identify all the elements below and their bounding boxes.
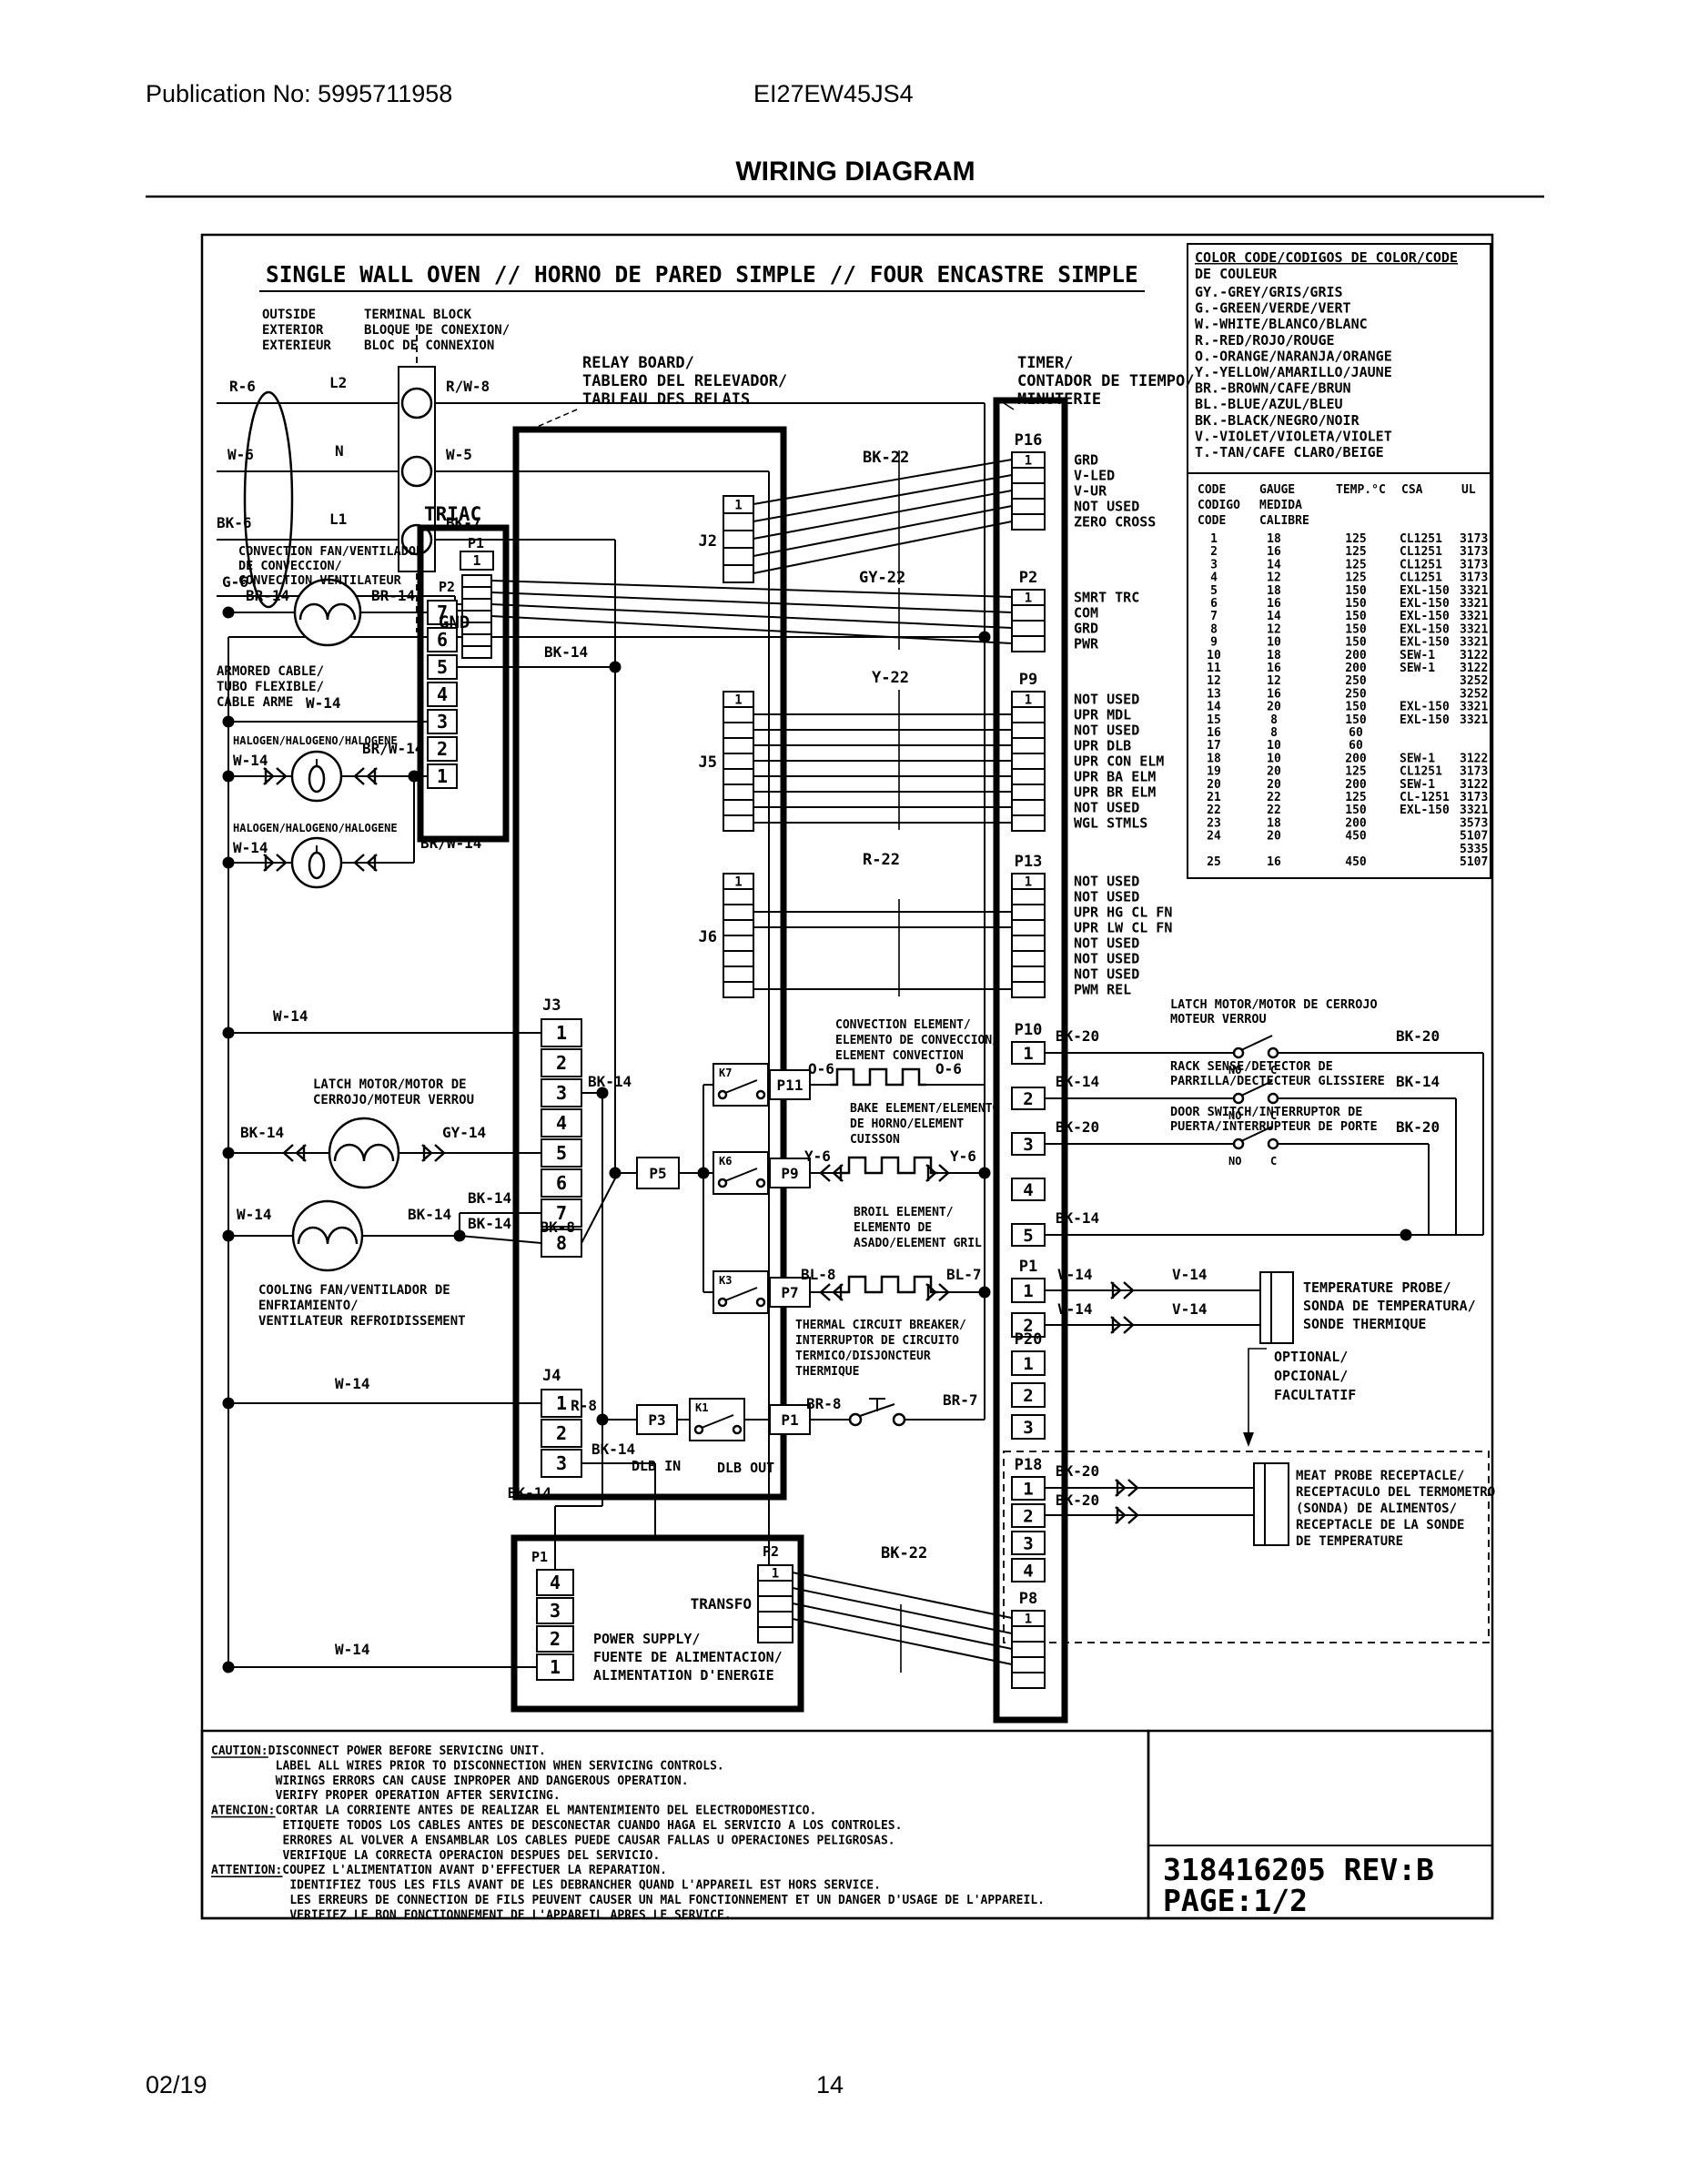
j6-cell [723,920,753,935]
gauge-cell-temp: 200 [1345,778,1367,792]
wire-label: P2 [439,579,455,595]
gauge-cell-gauge: 20 [1267,778,1281,792]
gauge-cell-code: 8 [1210,622,1218,636]
gauge-cell-ul: 3321 [1460,804,1488,817]
wire-label: BR-8 [806,1395,842,1412]
gauge-cell-ul: 3122 [1460,662,1488,675]
wire-label: BL-7 [946,1266,982,1283]
wire-label: BK-14 [240,1124,284,1141]
j5-cell [723,769,753,784]
connector-cell [1012,982,1045,997]
pin-label: UPR MDL [1074,707,1131,723]
wire-label: BK-8 [540,1218,575,1236]
gauge-cell-gauge: 16 [1267,855,1281,869]
wire-label: DLB IN [632,1458,681,1474]
gauge-table-box [1188,473,1491,878]
gauge-cell-csa: SEW-1 [1400,752,1435,765]
wire-label: BK-20 [1056,1118,1099,1136]
j6-cell [723,905,753,920]
pin-number: 2 [556,1052,567,1074]
pin-number: 2 [1023,1089,1033,1109]
connector-cell [1012,605,1045,621]
psu-p2-cell [758,1596,793,1612]
wire-label: O-6 [935,1060,962,1077]
wire-label: DLB OUT [717,1460,774,1476]
j6-cell [723,966,753,982]
wire-label: W-14 [335,1375,370,1392]
wire-label: INTERRUPTOR DE CIRCUITO [795,1334,959,1348]
pin-label: NOT USED [1074,874,1139,890]
wire-label: W-14 [233,752,268,769]
pin-label: PWR [1074,636,1099,652]
wire-label: CONTADOR DE TIEMPO/ [1017,372,1194,390]
gauge-cell-ul: 3252 [1460,687,1488,701]
junction-dot [223,1027,235,1039]
wire-label: BK-20 [1056,1491,1099,1509]
psu-p2-cell [758,1627,793,1643]
wire-label: W-14 [306,694,341,712]
gauge-cell-gauge: 12 [1267,674,1281,688]
pin-number: 2 [1023,1507,1033,1527]
wire-label: BK-14 [468,1189,511,1207]
j5-cell [723,753,753,769]
gauge-cell-ul: 3173 [1460,765,1488,779]
gauge-cell-code: 17 [1207,739,1221,753]
port-label: K7 [719,1067,732,1079]
j6-cell [723,935,753,951]
connector-cell [1012,1642,1045,1657]
pin-number: 4 [550,1572,561,1593]
pin-label: UPR DLB [1074,738,1131,754]
gauge-cell-code: 13 [1207,687,1221,701]
wire-label: Y-6 [804,1148,831,1165]
wire-label: OUTSIDE [262,308,316,322]
pin-number: 2 [550,1628,561,1650]
junction-dot [979,632,991,643]
pin-label: NOT USED [1074,889,1139,905]
gauge-cell-csa: CL1251 [1400,545,1442,559]
gauge-cell-gauge: 22 [1267,804,1281,817]
broil-element-symbol [842,1277,938,1292]
connector-cell [1012,966,1045,982]
wire-label: BK-14 [1056,1209,1099,1227]
gauge-cell-ul: 3173 [1460,571,1488,585]
junction-dot [409,771,420,783]
connector-cell [1012,621,1045,636]
connector-cell [1012,889,1045,905]
junction-dot [979,1287,991,1299]
connector-cell [1012,769,1045,784]
wire-label: TEMPERATURE PROBE/ [1303,1279,1451,1296]
wire-label: R-6 [229,378,256,395]
gauge-cell-code: 11 [1207,662,1221,675]
junction-dot [223,857,235,869]
pin-label: UPR BR ELM [1074,784,1156,801]
gauge-cell-temp: 125 [1345,791,1366,804]
wire-label: RELAY BOARD/ [582,354,694,372]
wire-label: PUERTA/INTERRUPTEUR DE PORTE [1170,1119,1378,1134]
gauge-cell-ul: 3321 [1460,713,1488,727]
pin-label: UPR HG CL FN [1074,905,1172,921]
pin-number: 3 [550,1600,561,1622]
pin-label: ZERO CROSS [1074,514,1156,531]
gauge-cell-csa: CL1251 [1400,558,1442,571]
gauge-cell-csa: EXL-150 [1400,610,1450,623]
wire-label: W-6 [227,446,254,463]
wire-label: OPCIONAL/ [1274,1368,1348,1384]
wire-label: N [335,442,344,460]
color-code-entry: BR.-BROWN/CAFE/BRUN [1195,380,1351,397]
connector-cell [1012,905,1045,920]
wire-label: TABLEAU DES RELAIS [582,390,750,409]
gauge-cell-ul: 3122 [1460,752,1488,765]
color-code-entry: T.-TAN/CAFE CLARO/BEIGE [1195,444,1384,460]
junction-dots [223,607,1412,1673]
connector-cell [1012,784,1045,800]
pin-number: 2 [1023,1386,1033,1406]
gauge-cell-temp: 250 [1345,674,1367,688]
wire-label: RECEPTACULO DEL TERMOMETRO [1296,1485,1495,1500]
pin-label: WGL STMLS [1074,815,1147,832]
wire-label: BLOQUE DE CONEXION/ [364,323,510,338]
pin-number: 1 [734,875,742,890]
caution-line: WIRINGS ERRORS CAN CAUSE INPROPER AND DA… [276,1774,689,1788]
wire-label: PARRILLA/DECTECTEUR GLISSIERE [1170,1074,1385,1088]
wire-label: TERMICO/DISJONCTEUR [795,1350,931,1363]
gauge-cell-gauge: 18 [1267,584,1281,598]
gauge-cell-ul: 3252 [1460,674,1488,688]
gauge-cell-csa: EXL-150 [1400,597,1450,611]
gauge-cell-temp: 150 [1345,584,1367,598]
pin-label: V-UR [1074,483,1107,500]
gauge-cell-ul: 3321 [1460,584,1488,598]
gauge-cell-gauge: 20 [1267,830,1281,844]
connector-cell [1012,1657,1045,1673]
gauge-cell-csa: SEW-1 [1400,662,1435,675]
pin-number: 3 [1023,1418,1033,1438]
connector-name-p1: P1 [1019,1258,1037,1276]
junction-dot [223,1662,235,1673]
gauge-cell-csa: CL1251 [1400,571,1442,585]
wire-label: J4 [542,1367,561,1385]
pin-number: 1 [1025,1613,1032,1627]
pin-label: GRD [1074,452,1098,469]
gauge-cell-temp: 125 [1345,545,1366,559]
wire-label: BK-14 [1396,1073,1440,1090]
wire-label: R-8 [571,1397,597,1414]
pin-number: 4 [1023,1180,1033,1200]
gauge-cell-gauge: 22 [1267,791,1281,804]
wire-label: J2 [699,532,717,551]
pin-label: NOT USED [1074,935,1139,952]
gauge-cell-gauge: 14 [1267,610,1281,623]
gauge-cell-ul: 3122 [1460,778,1488,792]
j5-cell [723,738,753,753]
color-code-entry: BL.-BLUE/AZUL/BLEU [1195,396,1343,412]
wire-label: BR/W-14 [420,834,481,852]
gauge-cell-gauge: 10 [1267,739,1281,753]
pin-label: NOT USED [1074,800,1139,816]
gauge-cell-code: 23 [1207,816,1221,830]
wire-label: BR-7 [943,1391,978,1409]
pin-number: 5 [437,656,448,678]
gauge-cell-code: 3 [1210,558,1218,571]
cooling-fan-symbol [293,1201,362,1270]
gauge-cell-temp: 150 [1345,701,1367,714]
gauge-cell-code: 16 [1207,726,1221,740]
wire-label: CONVECTION VENTILATEUR [238,573,402,588]
wire-label: TRIAC [424,503,481,525]
connector-cell [1012,499,1045,514]
wire-label: BAKE ELEMENT/ELEMENTO [850,1102,1000,1116]
j6-cell [723,982,753,997]
j2-cell [723,513,753,531]
caution-line: LABEL ALL WIRES PRIOR TO DISCONNECTION W… [276,1759,724,1773]
gauge-cell-temp: 200 [1345,662,1367,675]
caution-line: LES ERREURS DE CONNECTION DE FILS PEUVEN… [289,1894,1045,1907]
gauge-h-gauge3: CALIBRE [1259,514,1309,528]
pin-number: 1 [556,1392,567,1414]
connector-cell [1012,514,1045,530]
wire-label: BK-22 [881,1544,927,1562]
wire-label: RACK SENSE/DETECTOR DE [1170,1059,1333,1074]
gauge-h-temp: TEMP.°C [1336,483,1386,497]
pin-label: UPR BA ELM [1074,769,1156,785]
gauge-cell-gauge: 12 [1267,622,1281,636]
port-label: P5 [649,1165,666,1182]
junction-dot [698,1168,710,1179]
caution-line: VERIFIEZ LE BON FONCTIONNEMENT DE L'APPA… [289,1908,731,1922]
connector-cell [1012,920,1045,935]
gauge-cell-ul: 3321 [1460,597,1488,611]
wire-label: MEAT PROBE RECEPTACLE/ [1296,1469,1464,1483]
gauge-cell-ul: 5335 [1460,843,1488,856]
gauge-cell-code: 19 [1207,765,1221,779]
color-code-entries: GY.-GREY/GRIS/GRISG.-GREEN/VERDE/VERTW.-… [1195,284,1392,460]
gauge-cell-csa: EXL-150 [1400,622,1450,636]
connector-cell [1012,468,1045,483]
gauge-cell-temp: 200 [1345,649,1367,662]
gauge-cell-csa: CL1251 [1400,532,1442,546]
wire-label: DE TEMPERATURE [1296,1534,1403,1549]
wire-label: FUENTE DE ALIMENTACION/ [593,1649,783,1665]
pin-number: 1 [1025,693,1032,708]
gauge-cell-temp: 150 [1345,636,1367,650]
color-code-entry: W.-WHITE/BLANCO/BLANC [1195,316,1368,332]
latch-motor-symbol [329,1118,399,1188]
wire-label: MOTEUR VERROU [1170,1012,1267,1026]
psu-p2-cell [758,1612,793,1627]
junction-dot [1400,1229,1412,1241]
model-number: EI27EW45JS4 [753,80,914,107]
connector-name-p2: P2 [1019,569,1037,587]
triac-p2-cell [462,634,491,646]
pin-label: NOT USED [1074,966,1139,983]
footer-page: 14 [816,2071,844,2098]
convection-element-symbol [830,1069,926,1085]
color-code-title: COLOR CODE/CODIGOS DE COLOR/CODE [1195,249,1458,266]
j5-cell [723,815,753,831]
wire-label: DOOR SWITCH/INTERRUPTOR DE [1170,1105,1362,1119]
gauge-cell-temp: 150 [1345,713,1367,727]
gauge-cell-csa: SEW-1 [1400,649,1435,662]
port-label: P7 [781,1284,798,1301]
caution-line: VERIFIQUE LA CORRECTA OPERACION DESPUES … [283,1849,661,1863]
pin-number: 3 [556,1082,567,1104]
junction-dot [610,1168,622,1179]
wire-label: V-14 [1172,1266,1208,1283]
wire-label: BK-14 [588,1073,632,1090]
publication-number: Publication No: 5995711958 [146,80,452,107]
junction-dot [223,1230,235,1242]
gauge-cell-code: 25 [1207,855,1221,869]
gauge-cell-temp: 450 [1345,855,1367,869]
port-label: K3 [719,1274,732,1287]
j2-cell [723,531,753,548]
gauge-h-code3: CODE [1198,514,1226,528]
wire-label: TUBO FLEXIBLE/ [217,680,324,694]
wire-label: ELEMENTO DE CONVECCION/ [835,1034,999,1047]
triac-p2-cell [462,646,491,658]
pin-label: NOT USED [1074,499,1139,515]
wire-label: BK-20 [1396,1027,1440,1045]
gauge-cell-code: 2 [1210,545,1218,559]
pin-number: 1 [1023,1281,1033,1301]
gauge-cell-csa: EXL-150 [1400,713,1450,727]
caution-line: VERIFY PROPER OPERATION AFTER SERVICING. [276,1789,561,1803]
wire-label: J6 [699,928,717,946]
gauge-cell-gauge: 16 [1267,597,1281,611]
gauge-cell-temp: 125 [1345,571,1366,585]
connector-name-p8: P8 [1019,1590,1037,1608]
pin-number: 1 [1023,1354,1033,1374]
connector-cell [1012,935,1045,951]
gauge-cell-csa: EXL-150 [1400,804,1450,817]
gauge-table-rows: 118125CL12513173216125CL12513173314125CL… [1207,532,1488,869]
connector-name-p20: P20 [1015,1330,1043,1349]
gauge-cell-ul: 3122 [1460,649,1488,662]
caution-text: CAUTION:DISCONNECT POWER BEFORE SERVICIN… [211,1744,1045,1922]
gauge-h-gauge2: MEDIDA [1259,499,1302,512]
wire-label: EXTERIOR [262,323,324,338]
gauge-cell-gauge: 18 [1267,649,1281,662]
pin-number: 4 [437,683,448,705]
wire-label: (SONDA) DE ALIMENTOS/ [1296,1501,1457,1516]
pin-number: 2 [437,738,448,760]
gauge-cell-code: 20 [1207,778,1221,792]
caution-line: IDENTIFIEZ TOUS LES FILS AVANT DE LES DE… [289,1879,881,1893]
wire-label: BK-14 [468,1215,511,1232]
pin-number: 1 [1025,454,1032,469]
wire-label: THERMIQUE [795,1365,859,1379]
j5-cell [723,707,753,723]
wire-label: POWER SUPPLY/ [593,1631,700,1647]
diagram-title: SINGLE WALL OVEN // HORNO DE PARED SIMPL… [266,261,1138,288]
port-label: P9 [781,1165,798,1182]
pin-number: 6 [556,1172,567,1194]
wire-label: J3 [542,996,561,1015]
gauge-cell-ul: 3573 [1460,816,1488,830]
wire-label: SONDA DE TEMPERATURA/ [1303,1298,1476,1314]
wire-label: W-14 [273,1007,308,1025]
wire-label: BK-22 [863,449,909,467]
connector-cell [1012,753,1045,769]
wire-label: BL-8 [801,1266,836,1283]
triac-p2-cell [462,587,491,599]
wire-label: DE HORNO/ELEMENT [850,1117,964,1131]
wire-label: W-5 [446,446,472,463]
wire-label: BK-14 [544,643,588,661]
connector-cell [1012,800,1045,815]
wire-label: CERROJO/MOTEUR VERROU [313,1093,474,1107]
meat-probe-receptacle-symbol [1254,1463,1289,1545]
optional-leader-arrow [1243,1349,1267,1447]
wire-label: BLOC DE CONNEXION [364,339,494,353]
port-label: P1 [781,1411,798,1429]
pin-number: 1 [1025,875,1032,890]
gauge-cell-temp: 200 [1345,752,1367,765]
pin-number: 4 [1023,1562,1033,1582]
pin-number: 1 [734,693,742,708]
wire-label: BR-14 [371,587,415,604]
gauge-cell-gauge: 16 [1267,545,1281,559]
junction-dot [597,1414,609,1426]
wire-label: ELEMENTO DE [854,1221,932,1235]
caution-line: ATTENTION:COUPEZ L'ALIMENTATION AVANT D'… [211,1864,667,1877]
gauge-cell-csa: EXL-150 [1400,584,1450,598]
color-code-entry: R.-RED/ROJO/ROUGE [1195,332,1335,349]
gauge-cell-ul: 3173 [1460,791,1488,804]
gauge-cell-ul: 5107 [1460,855,1488,869]
wire-label: GY-22 [859,569,905,587]
part-page: PAGE:1/2 [1163,1883,1308,1918]
gauge-cell-code: 1 [1210,532,1218,546]
wire-label: BK-14 [1056,1073,1099,1090]
pin-number: 3 [1023,1135,1033,1155]
gauge-cell-gauge: 18 [1267,816,1281,830]
gauge-cell-csa: CL1251 [1400,765,1442,779]
wire-label: BK-14 [508,1484,551,1501]
wire-label: DE CONVECCION/ [238,559,342,573]
relay-contact-icons [695,1080,764,1433]
gauge-cell-temp: 150 [1345,622,1367,636]
connector-name-p13: P13 [1015,853,1043,871]
wire-label: BK-20 [1396,1118,1440,1136]
connector-cell [1012,723,1045,738]
temperature-probe-symbol [1260,1272,1293,1343]
wire-label: V-14 [1057,1300,1093,1318]
gauge-cell-gauge: 10 [1267,752,1281,765]
gauge-h-gauge: GAUGE [1259,483,1295,497]
gauge-cell-temp: 450 [1345,830,1367,844]
connector-cell [1012,707,1045,723]
pin-number: 1 [550,1656,561,1678]
gauge-cell-code: 14 [1207,701,1221,714]
gauge-cell-temp: 60 [1349,726,1363,740]
wire-label: L1 [329,511,347,528]
color-code-entry: G.-GREEN/VERDE/VERT [1195,300,1351,317]
connector-name-p10: P10 [1015,1021,1043,1039]
footer-date: 02/19 [146,2071,207,2098]
wire-label: LATCH MOTOR/MOTOR DE [313,1077,467,1092]
pin-label: PWM REL [1074,982,1131,998]
port-label: K1 [695,1401,708,1414]
pin-number: 5 [556,1142,567,1164]
connector-cell [1012,636,1045,652]
bake-element-symbol [842,1158,938,1173]
gauge-cell-temp: 150 [1345,610,1367,623]
pin-number: 3 [437,711,448,733]
